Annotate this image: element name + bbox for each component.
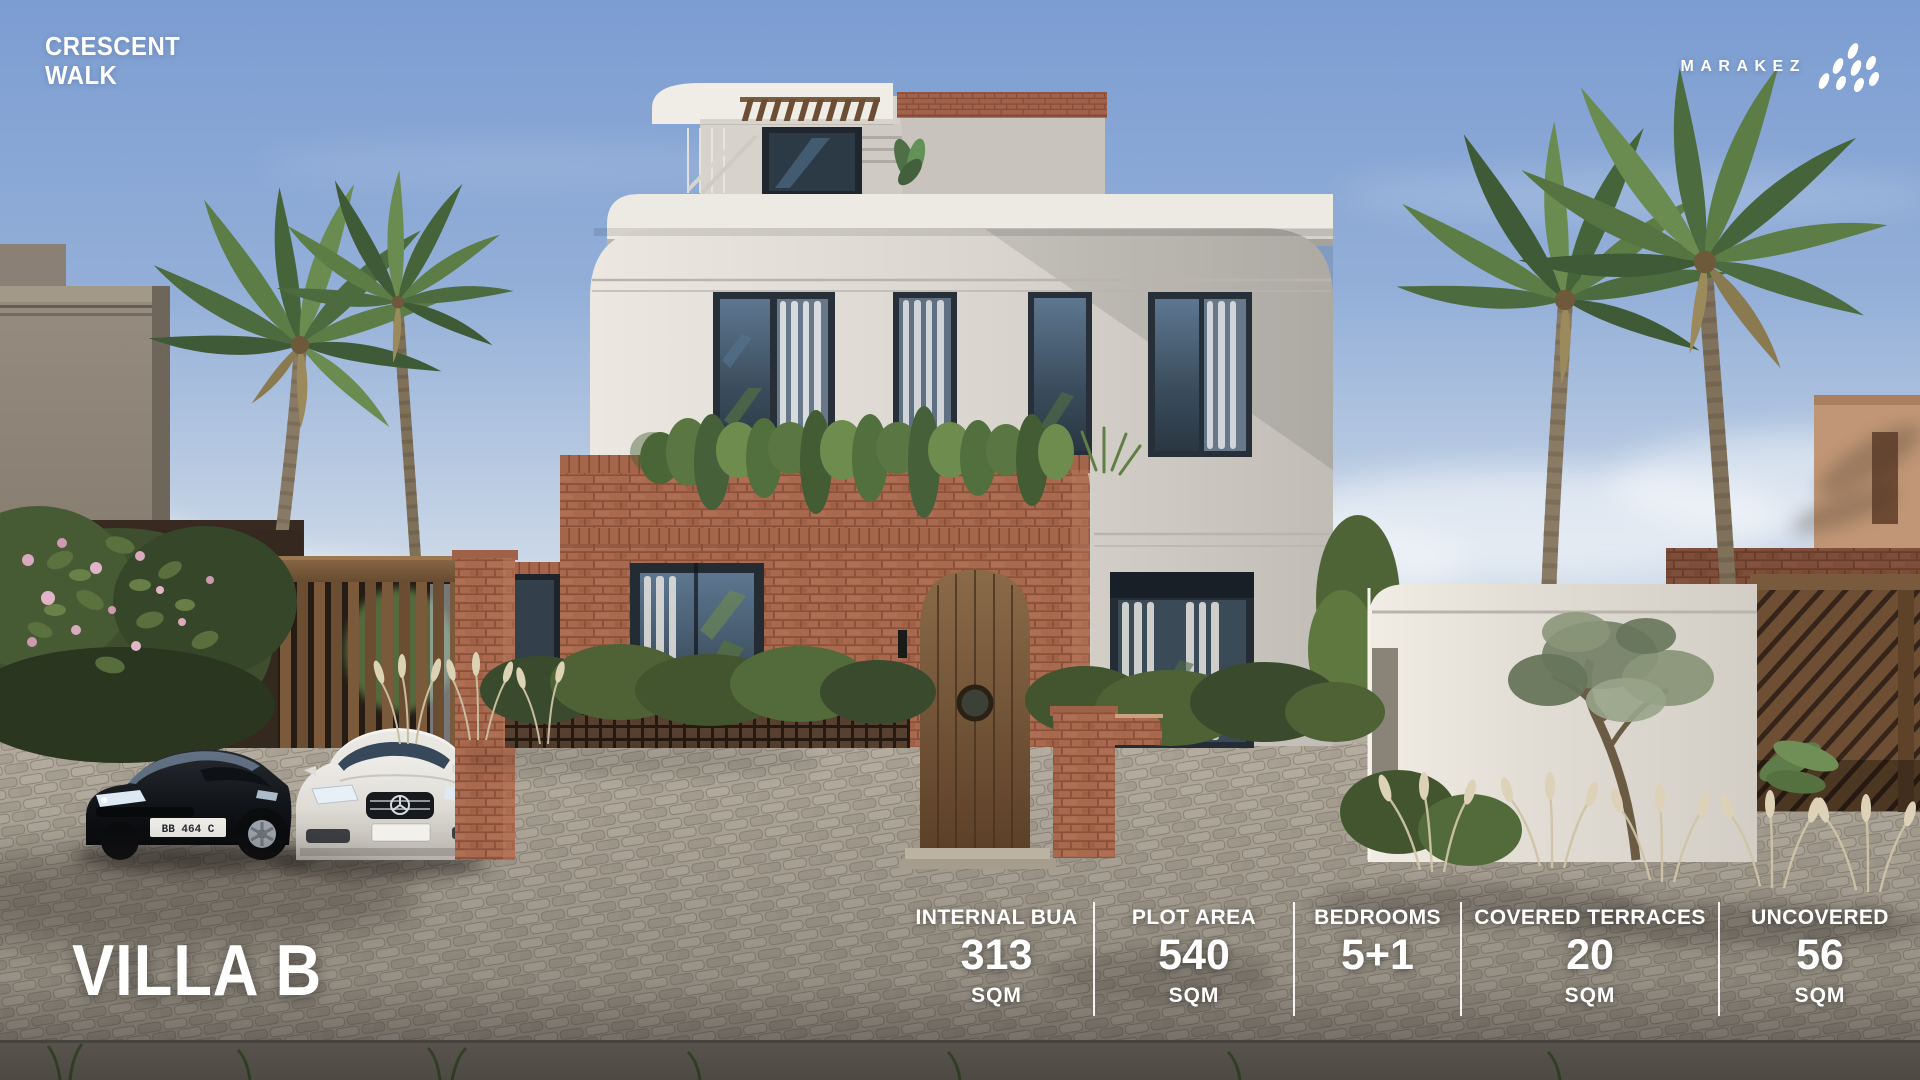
stat-value: 56 [1796, 934, 1844, 977]
stat-value: 540 [1158, 934, 1230, 977]
project-name-line2: WALK [45, 61, 180, 90]
brand-lockup: MARAKEZ [1681, 40, 1881, 94]
stat-column-plot-area: PLOT AREA 540 SQM [1093, 902, 1293, 1016]
stat-label: PLOT AREA [1132, 907, 1256, 928]
stat-label: BEDROOMS [1314, 907, 1441, 928]
stat-column-uncovered: UNCOVERED 56 SQM [1718, 902, 1920, 1016]
stat-column-bedrooms: BEDROOMS 5+1 [1293, 902, 1460, 1016]
stat-unit: SQM [971, 985, 1022, 1006]
flower-bush [0, 506, 297, 763]
stat-value: 20 [1566, 934, 1614, 977]
stat-unit: SQM [1565, 985, 1616, 1006]
marakez-logo-icon [1816, 40, 1880, 94]
license-plate: BB 464 C [162, 824, 215, 836]
stat-label: COVERED TERRACES [1474, 907, 1706, 928]
stat-label: INTERNAL BUA [916, 907, 1078, 928]
brochure-slide: BB 464 C [0, 0, 1920, 1080]
stat-label: UNCOVERED [1751, 907, 1889, 928]
stat-value: 313 [961, 934, 1033, 977]
stat-column-covered-terraces: COVERED TERRACES 20 SQM [1460, 902, 1718, 1016]
brand-name: MARAKEZ [1681, 58, 1807, 76]
stat-unit: SQM [1169, 985, 1220, 1006]
stats-bar: INTERNAL BUA 313 SQM PLOT AREA 540 SQM B… [900, 902, 1920, 1016]
stat-value: 5+1 [1341, 934, 1414, 977]
project-name: CRESCENT WALK [45, 32, 180, 90]
villa-title: VILLA B [72, 930, 322, 1012]
stat-unit: SQM [1795, 985, 1846, 1006]
stat-column-internal-bua: INTERNAL BUA 313 SQM [900, 902, 1093, 1016]
project-name-line1: CRESCENT [45, 32, 180, 61]
